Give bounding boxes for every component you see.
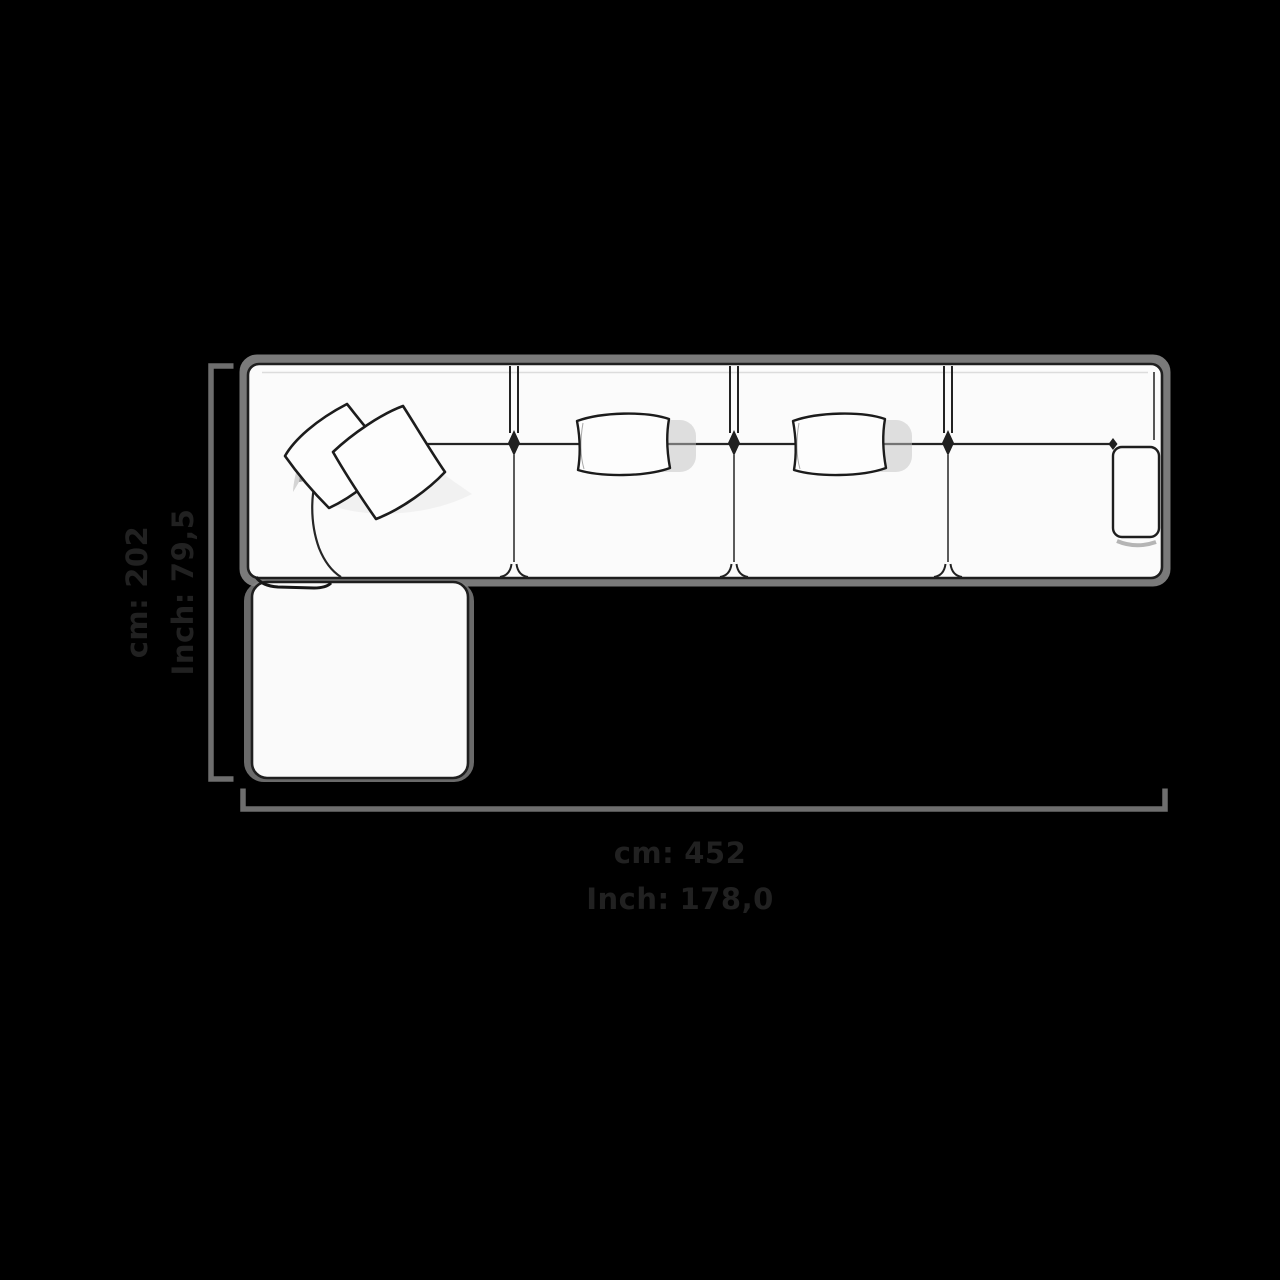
depth-dimension-label: cm:202 Inch:79,5 — [114, 442, 206, 742]
chaise-module — [252, 582, 468, 778]
width-cm-unit: cm: — [614, 836, 675, 870]
width-cm-line: cm:452 — [530, 830, 830, 876]
depth-cm-unit: cm: — [120, 598, 154, 659]
seat-pillow-a — [577, 414, 670, 475]
depth-cm-line: cm:202 — [114, 442, 160, 742]
depth-inch-line: Inch:79,5 — [160, 442, 206, 742]
seat-pillow-b-group — [793, 414, 912, 475]
dimension-line-vertical — [211, 366, 234, 779]
width-inch-line: Inch:178,0 — [530, 876, 830, 922]
dimension-line-horizontal — [243, 789, 1165, 810]
width-inch-value: 178,0 — [680, 882, 774, 916]
width-cm-value: 452 — [684, 836, 746, 870]
depth-inch-unit: Inch: — [166, 592, 200, 675]
width-inch-unit: Inch: — [586, 882, 669, 916]
width-dimension-label: cm:452 Inch:178,0 — [530, 830, 830, 922]
seat-pillow-a-group — [577, 414, 696, 475]
seat-pillow-b — [793, 414, 886, 475]
depth-cm-value: 202 — [120, 526, 154, 588]
right-armrest — [1113, 447, 1159, 537]
depth-inch-value: 79,5 — [166, 509, 200, 583]
dimension-diagram-canvas: cm:452 Inch:178,0 cm:202 Inch:79,5 — [0, 0, 1280, 1280]
